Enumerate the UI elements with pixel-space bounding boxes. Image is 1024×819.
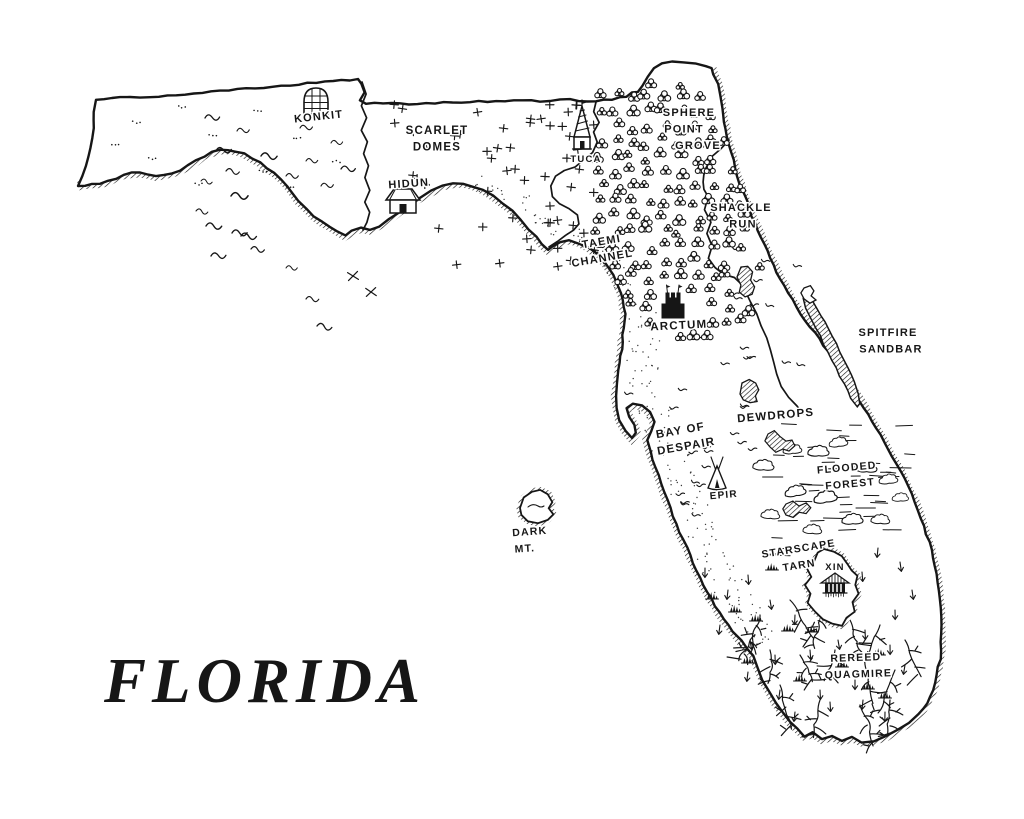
wave-hill-icon — [211, 252, 226, 259]
sawgrass-arrow-icon — [744, 672, 750, 682]
place-label-shackle-run: RUN — [729, 219, 756, 231]
place-spitfire-sandbar: SPITFIRESANDBAR — [858, 327, 922, 356]
water-dash — [828, 458, 839, 459]
house-icon — [386, 189, 420, 213]
landmass-layer — [78, 62, 942, 743]
grass-check-icon — [793, 264, 802, 267]
wave-hill-icon — [226, 168, 240, 174]
florida-fantasy-map: FLORIDA KONKITSCARLETDOMESHIDUNTUCASPHER… — [0, 0, 1024, 819]
place-label-xin: XIN — [825, 562, 844, 573]
grass-cross-icon — [452, 260, 461, 269]
wave-hill-icon — [251, 246, 265, 252]
x-mark-icon — [348, 271, 359, 280]
grass-cross-icon — [479, 223, 487, 231]
place-dark-mt: DARKMT. — [512, 525, 549, 556]
x-mark-icon — [366, 288, 377, 297]
wave-hill-icon — [206, 223, 222, 229]
wave-hill-icon — [286, 266, 297, 271]
water-dash — [840, 436, 849, 437]
tree-icon — [615, 89, 624, 96]
place-label-dark-mt: DARK — [512, 525, 548, 539]
place-label-dark-mt: MT. — [514, 542, 535, 555]
place-tuca: TUCA — [570, 154, 601, 165]
place-label-spitfire-sandbar: SANDBAR — [859, 344, 922, 356]
water-dash — [781, 424, 796, 425]
water-dash — [905, 454, 915, 455]
water-dash — [896, 425, 913, 426]
place-label-rereed-quagmire: REREED — [830, 651, 881, 665]
tree-icon — [595, 89, 606, 98]
map-canvas: FLORIDA KONKITSCARLETDOMESHIDUNTUCASPHER… — [0, 0, 1024, 819]
wave-hill-icon — [196, 209, 208, 215]
water-dash — [809, 490, 819, 491]
place-label-rereed-quagmire: QUAGMIRE — [825, 667, 893, 681]
place-label-scarlet-domes: DOMES — [413, 142, 461, 154]
wave-hill-icon — [231, 192, 248, 199]
florida-outline — [78, 62, 942, 743]
grass-cross-icon — [434, 224, 443, 232]
wave-hill-icon — [317, 323, 332, 330]
grass-cross-icon — [553, 262, 562, 271]
water-dash — [840, 512, 851, 513]
map-title: FLORIDA — [103, 646, 426, 716]
wave-hill-icon — [306, 296, 319, 301]
dewdrops-pond — [740, 380, 759, 403]
place-label-sphere-point-grove: SPHERE — [663, 107, 715, 119]
place-label-spitfire-sandbar: SPITFIRE — [858, 327, 917, 339]
sawgrass-arrow-icon — [716, 625, 722, 635]
water-dash — [772, 538, 782, 539]
river-lake — [737, 266, 755, 297]
place-label-tuca: TUCA — [570, 154, 601, 165]
dot-cluster — [194, 182, 202, 185]
grass-cross-icon — [526, 246, 535, 254]
place-label-sphere-point-grove: GROVE — [675, 140, 721, 152]
place-xin: XIN — [825, 562, 844, 573]
place-label-scarlet-domes: SCARLET — [406, 125, 469, 137]
place-label-shackle-run: SHACKLE — [710, 202, 772, 214]
place-label-sphere-point-grove: POINT — [664, 124, 704, 136]
grass-cross-icon — [495, 259, 504, 268]
